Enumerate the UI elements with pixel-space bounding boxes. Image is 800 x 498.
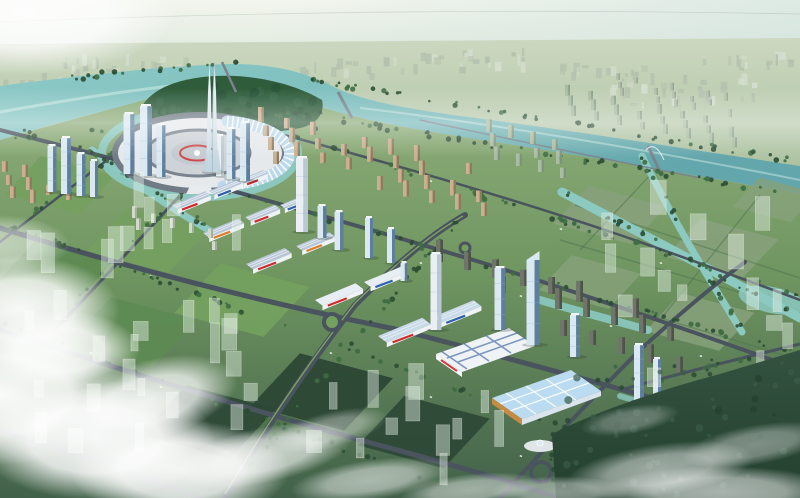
tree — [312, 211, 317, 216]
tree — [773, 189, 777, 193]
ghost-building — [144, 227, 153, 249]
tree — [717, 292, 721, 296]
distant-building — [306, 70, 309, 75]
residential-tower — [464, 252, 468, 270]
tree — [286, 416, 290, 420]
tree — [418, 241, 423, 246]
tree — [261, 418, 265, 422]
residential-tower-shade — [593, 330, 596, 345]
ghost-building — [232, 215, 240, 251]
residential-tower-shade — [470, 163, 472, 174]
aerial-rendering: Bird's-eye 3D rendering of a planned cit… — [0, 0, 800, 498]
tree — [81, 76, 86, 81]
distant-building — [577, 67, 580, 75]
tree — [718, 295, 723, 300]
ghost-building — [356, 438, 364, 458]
distant-building — [522, 48, 524, 56]
tree — [179, 68, 183, 72]
residential-tower — [212, 241, 215, 250]
forest-tree — [696, 424, 704, 432]
forest-tree — [710, 359, 713, 362]
residential-tower — [429, 191, 433, 203]
tree — [637, 165, 642, 170]
tree — [672, 318, 676, 322]
tree — [407, 169, 411, 173]
tree — [252, 417, 256, 421]
forest-tree — [708, 372, 713, 377]
tree — [719, 330, 725, 336]
horizon-haze — [0, 88, 800, 158]
tree — [427, 253, 430, 256]
residential-tower-shade — [6, 161, 8, 172]
ghost-building — [453, 418, 462, 439]
ghost-building — [183, 300, 194, 332]
tree — [664, 174, 669, 179]
tree — [168, 281, 172, 285]
ghost-building — [231, 405, 243, 430]
tree — [248, 195, 251, 198]
residential-tower — [639, 315, 643, 333]
tree — [196, 215, 200, 219]
residential-tower — [22, 165, 26, 177]
tree — [664, 253, 668, 257]
forest-tree — [722, 414, 728, 420]
tower-cap — [496, 266, 505, 268]
ghost-building — [747, 278, 759, 310]
distant-building — [141, 61, 145, 69]
tree — [586, 159, 589, 162]
distant-building — [788, 60, 794, 68]
tree — [710, 281, 715, 286]
tree — [245, 408, 251, 414]
tree — [385, 299, 389, 303]
distant-building — [651, 73, 655, 85]
distant-building — [521, 62, 526, 73]
tree — [784, 308, 788, 312]
tree — [597, 298, 602, 303]
tree — [348, 348, 351, 351]
tree — [296, 405, 299, 408]
tree — [716, 362, 719, 365]
forest-tree — [750, 406, 757, 413]
tower-cap — [432, 252, 441, 254]
tree — [155, 191, 159, 195]
distant-building — [517, 54, 520, 66]
tree — [419, 246, 424, 251]
distant-building — [560, 66, 562, 74]
tree — [409, 173, 413, 177]
tree — [365, 454, 370, 459]
residential-tower-shade — [564, 168, 566, 178]
tower-cap — [319, 204, 326, 206]
tree — [196, 292, 201, 297]
tower-lit-face — [90, 161, 95, 197]
tree — [338, 82, 341, 85]
tree — [502, 199, 505, 202]
tree — [398, 236, 402, 240]
residential-tower-shade — [211, 229, 213, 238]
forest-tree — [673, 364, 677, 368]
distant-building — [459, 67, 465, 74]
tree — [326, 219, 332, 225]
tree — [645, 308, 649, 312]
distant-building — [394, 57, 397, 66]
tree — [599, 158, 604, 163]
tree — [424, 254, 428, 258]
distant-building — [736, 55, 739, 66]
tree — [703, 366, 706, 369]
residential-tower — [189, 223, 192, 233]
tower-lit-face — [387, 229, 392, 263]
tree — [557, 282, 560, 285]
tree — [336, 357, 341, 362]
forest-tree — [565, 418, 570, 423]
forest-tree — [658, 370, 663, 375]
tree — [558, 216, 562, 220]
residential-tower-shade — [381, 176, 383, 190]
residential-tower-shade — [615, 307, 618, 325]
tower-cap — [388, 227, 394, 229]
residential-tower — [136, 218, 139, 230]
distant-building — [369, 73, 375, 80]
residential-tower-shade — [542, 160, 544, 172]
distant-building — [353, 61, 358, 66]
tree — [759, 186, 762, 189]
tree — [698, 264, 701, 267]
tree — [619, 385, 624, 390]
tree — [160, 194, 163, 197]
residential-tower-shade — [139, 218, 141, 230]
forest-tree — [587, 447, 593, 453]
residential-tower-shade — [192, 223, 194, 233]
forest-tree — [681, 370, 687, 376]
residential-tower-shade — [459, 194, 461, 210]
tree — [670, 171, 674, 175]
tree — [550, 458, 553, 461]
ghost-building — [167, 194, 180, 216]
distant-building — [606, 68, 610, 76]
residential-tower — [208, 229, 211, 238]
residential-tower — [667, 327, 671, 342]
tree — [145, 222, 150, 227]
tree — [668, 252, 672, 256]
distant-building — [571, 72, 576, 81]
ghost-building — [650, 181, 666, 215]
tree — [173, 66, 176, 69]
forest-tree — [715, 406, 723, 414]
tree — [236, 61, 239, 64]
tree — [158, 69, 163, 74]
distant-building — [384, 57, 390, 66]
tree — [156, 277, 159, 280]
distant-building — [596, 68, 602, 79]
distant-building — [160, 57, 166, 63]
distant-building — [512, 52, 516, 56]
tree — [470, 188, 473, 191]
ghost-building — [386, 418, 398, 435]
residential-tower-shade — [433, 191, 435, 203]
residential-tower — [583, 298, 587, 317]
tree — [265, 200, 268, 203]
tree — [355, 349, 360, 354]
tree — [688, 256, 693, 261]
ghost-building — [678, 285, 688, 301]
residential-tower — [548, 277, 552, 294]
residential-tower — [2, 161, 6, 172]
distant-building — [336, 64, 340, 70]
tree — [265, 417, 268, 420]
tree — [504, 201, 508, 205]
distant-building — [742, 74, 748, 86]
tree — [705, 328, 708, 331]
tree — [187, 63, 191, 67]
tree — [389, 162, 394, 167]
tree — [729, 308, 734, 313]
ghost-building — [481, 390, 489, 412]
tree — [698, 175, 701, 178]
tree — [202, 222, 206, 226]
tree — [672, 208, 677, 213]
tower-cap — [336, 210, 343, 212]
tower-shade-face — [340, 212, 343, 250]
residential-tower — [632, 298, 636, 318]
tree — [275, 202, 278, 205]
ghost-building — [658, 270, 670, 291]
tree — [141, 68, 145, 72]
tree — [455, 221, 458, 224]
tree — [39, 206, 43, 210]
tree — [659, 171, 664, 176]
tower-cap — [635, 343, 643, 345]
forest-tree — [564, 396, 572, 404]
ghost-building — [222, 318, 237, 350]
ghost-building — [120, 226, 134, 251]
residential-tower-shade — [621, 82, 623, 88]
residential-tower-shade — [26, 165, 28, 177]
tree — [142, 272, 145, 275]
ghost-building — [210, 323, 219, 363]
tree — [182, 212, 184, 214]
residential-tower — [30, 190, 34, 203]
tower-shade-face — [95, 161, 98, 197]
tree — [382, 307, 386, 311]
distant-building — [642, 66, 648, 73]
residential-tower-shade — [619, 73, 621, 80]
tree — [705, 266, 709, 270]
distant-building — [683, 75, 687, 85]
residential-tower-shade — [637, 78, 639, 84]
tree — [380, 231, 383, 234]
tree — [164, 197, 166, 199]
tree — [395, 292, 398, 295]
tree — [404, 368, 408, 372]
tree — [369, 320, 372, 323]
distant-building — [413, 64, 417, 75]
forest-tree — [753, 382, 757, 386]
ghost-building — [767, 316, 783, 331]
residential-tower-shade — [135, 206, 137, 218]
tree — [86, 73, 90, 77]
tree — [71, 74, 74, 77]
residential-tower — [611, 307, 615, 325]
residential-tower-shade — [428, 175, 430, 189]
tree — [176, 288, 179, 291]
distant-building — [433, 55, 437, 58]
ghost-building — [690, 214, 706, 240]
tree — [75, 78, 78, 81]
tree — [711, 329, 715, 333]
distant-building — [739, 68, 744, 71]
ghost-building — [329, 383, 337, 410]
tree — [661, 379, 664, 382]
tree — [319, 80, 324, 85]
residential-tower-shade — [407, 181, 409, 197]
tree — [723, 279, 726, 282]
tree — [654, 315, 657, 318]
tree — [338, 343, 342, 347]
distant-building — [344, 69, 349, 79]
tree — [654, 238, 658, 242]
ghost-building — [406, 387, 420, 422]
forest-tree — [631, 377, 635, 381]
forest-tree — [772, 413, 775, 416]
tower-cap — [571, 313, 579, 315]
tree — [412, 267, 416, 271]
tree — [695, 322, 700, 327]
residential-tower-shade — [485, 203, 487, 216]
tree — [774, 157, 780, 163]
tree — [640, 231, 645, 236]
tree — [738, 358, 743, 363]
tree — [588, 230, 592, 234]
residential-tower-shade — [14, 186, 16, 198]
tree — [613, 219, 616, 222]
distant-building — [151, 62, 157, 69]
tree — [156, 216, 161, 221]
residential-tower — [538, 160, 542, 172]
tree — [354, 84, 357, 87]
tree — [451, 229, 453, 231]
tree — [659, 249, 662, 252]
tree — [453, 388, 457, 392]
tree — [121, 72, 124, 75]
tree — [159, 212, 162, 215]
distant-building — [582, 65, 589, 69]
distant-building — [625, 73, 627, 77]
distant-building — [464, 53, 467, 57]
tree — [206, 64, 209, 67]
tree — [33, 211, 37, 215]
tree — [93, 76, 96, 79]
tree — [627, 225, 631, 229]
distant-building — [489, 63, 491, 68]
residential-tower — [132, 206, 135, 218]
tree — [763, 344, 766, 347]
tree — [648, 169, 651, 172]
distant-building — [426, 54, 432, 64]
tree — [461, 387, 466, 392]
residential-tower-shade — [680, 357, 683, 372]
tree — [652, 311, 654, 313]
ghost-building — [209, 298, 219, 323]
residential-tower-shade — [580, 281, 583, 302]
tree — [747, 357, 751, 361]
forest-tree — [780, 362, 783, 365]
distant-building — [741, 56, 746, 60]
distant-building — [776, 55, 778, 66]
tree — [134, 270, 137, 273]
residential-tower — [377, 176, 381, 190]
residential-tower — [618, 82, 621, 88]
residential-tower — [676, 357, 680, 372]
residential-tower — [419, 161, 423, 175]
ghost-building — [773, 290, 781, 312]
residential-tower — [589, 330, 593, 345]
tree — [34, 207, 39, 212]
residential-tower-shade — [454, 180, 456, 196]
forest-tree — [595, 378, 600, 383]
tree — [390, 296, 396, 302]
tree — [376, 231, 381, 236]
distant-building — [703, 59, 707, 65]
tree — [553, 420, 558, 425]
residential-tower — [576, 281, 580, 302]
tree — [739, 323, 743, 327]
tree — [158, 281, 162, 285]
residential-tower-shade — [350, 157, 352, 169]
distant-building — [622, 78, 624, 81]
tree — [703, 178, 706, 181]
residential-tower — [618, 337, 622, 354]
tower-lit-face — [365, 218, 370, 258]
residential-tower — [560, 168, 564, 178]
forest-tree — [691, 372, 696, 377]
roundabout-central — [324, 314, 340, 330]
ghost-building — [783, 323, 793, 349]
roundabout-north — [460, 243, 470, 253]
ghost-building — [641, 248, 655, 276]
ghost-building — [495, 410, 504, 446]
residential-tower — [520, 270, 524, 286]
tree — [151, 277, 154, 280]
ghost-building — [368, 370, 379, 407]
tower-shade-face — [370, 218, 373, 258]
tree — [394, 364, 399, 369]
residential-tower — [560, 320, 564, 336]
tree — [239, 310, 244, 315]
entrance-dome — [537, 440, 543, 446]
tree — [225, 302, 227, 304]
tree — [323, 373, 328, 378]
tree — [688, 322, 693, 327]
residential-tower — [450, 180, 454, 196]
distant-building — [485, 57, 490, 64]
tree — [311, 78, 314, 81]
tower-shade-face — [392, 229, 395, 263]
residential-tower — [424, 175, 428, 189]
tree — [661, 314, 666, 319]
tree — [316, 80, 319, 83]
tree — [112, 69, 118, 75]
tower-shade-face — [405, 263, 408, 281]
ghost-building — [602, 213, 613, 240]
tower-shade-face — [323, 206, 326, 238]
tree — [613, 163, 618, 168]
ghost-building — [729, 234, 744, 269]
tree — [633, 240, 638, 245]
tree — [484, 265, 489, 270]
residential-tower — [476, 191, 480, 203]
